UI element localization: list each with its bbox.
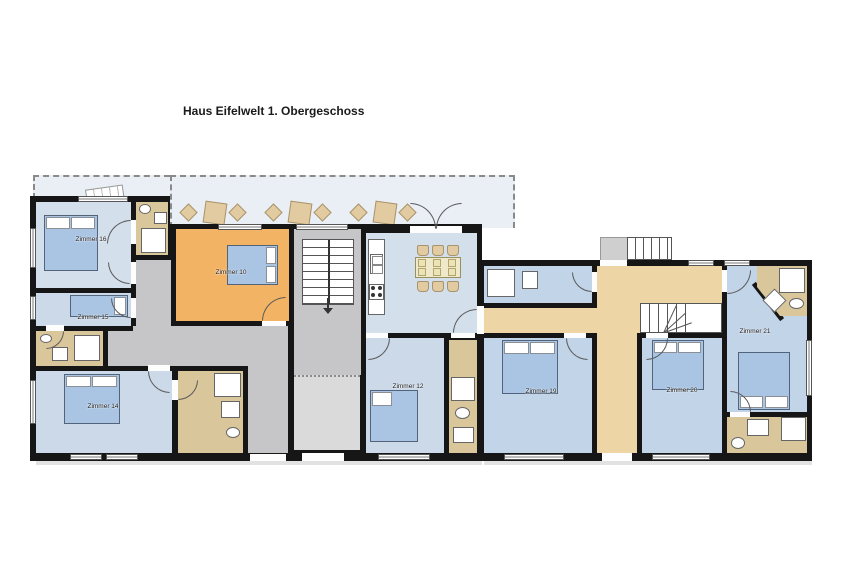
shower-icon: [74, 335, 100, 361]
pillow: [66, 376, 91, 387]
shower-icon: [451, 377, 475, 401]
pillow: [530, 342, 555, 354]
pillow: [46, 217, 70, 229]
door-opening: [131, 298, 136, 318]
building-shadow: [36, 461, 302, 465]
window: [806, 340, 812, 396]
entry-vestibule: [294, 375, 360, 450]
door-opening: [730, 412, 750, 417]
room-label-zimmer-19: Zimmer 19: [514, 388, 568, 396]
sink-basin: [372, 265, 383, 274]
room-label-zimmer-14: Zimmer 14: [76, 403, 130, 411]
pillow: [678, 342, 701, 353]
chair-icon: [447, 245, 459, 256]
room-label-zimmer-16: Zimmer 16: [64, 236, 118, 244]
toilet-icon: [731, 437, 745, 449]
hallway-right-corridor: [597, 333, 637, 453]
place-setting: [448, 268, 456, 276]
hallway-right-west: [484, 308, 597, 333]
place-setting: [433, 259, 441, 267]
door-opening: [250, 454, 286, 461]
pillow: [765, 396, 788, 408]
room-label-zimmer-10: Zimmer 10: [204, 269, 258, 277]
window: [504, 454, 564, 460]
burner-icon: [371, 293, 375, 297]
door-opening: [131, 220, 136, 244]
main-staircase-icon: [302, 239, 354, 305]
burner-icon: [371, 286, 375, 290]
window: [724, 260, 750, 266]
corridor-lower: [248, 366, 288, 453]
window: [70, 454, 102, 460]
toilet-icon: [455, 407, 470, 419]
floor-plan: Haus Eifelwelt 1. Obergeschoss: [0, 0, 842, 562]
stair-stringer: [328, 240, 330, 304]
sink-basin: [372, 256, 383, 265]
stair-arrow-icon: [327, 298, 329, 308]
hallway-left: [136, 260, 171, 326]
sink-icon: [747, 419, 769, 436]
window: [652, 454, 710, 460]
room-label-zimmer-15: Zimmer 15: [66, 314, 120, 322]
sink-icon: [522, 271, 538, 289]
toilet-icon: [789, 298, 804, 309]
chair-icon: [417, 245, 429, 256]
sink-icon: [453, 427, 474, 443]
page-title: Haus Eifelwelt 1. Obergeschoss: [183, 104, 364, 118]
window: [688, 260, 714, 266]
chair-icon: [417, 281, 429, 292]
place-setting: [418, 268, 426, 276]
burner-icon: [378, 293, 382, 297]
place-setting: [433, 268, 441, 276]
room-label-zimmer-20: Zimmer 20: [655, 387, 709, 395]
door-opening: [131, 262, 136, 284]
place-setting: [448, 259, 456, 267]
sink-icon: [154, 212, 167, 224]
chair-icon: [447, 281, 459, 292]
toilet-icon: [226, 427, 240, 438]
room-label-zimmer-12: Zimmer 12: [381, 383, 435, 391]
door-opening: [602, 453, 632, 461]
window: [218, 224, 262, 230]
room-label-zimmer-21: Zimmer 21: [728, 328, 782, 336]
kitchen-counter: [368, 239, 385, 315]
hallway-center: [133, 326, 288, 366]
shower-icon: [141, 228, 166, 253]
chair-icon: [432, 245, 444, 256]
door-opening: [451, 333, 475, 338]
shower-icon: [487, 269, 515, 297]
window: [106, 454, 138, 460]
toilet-icon: [139, 204, 151, 214]
chair-icon: [432, 281, 444, 292]
shower-icon: [779, 268, 805, 293]
pillow: [92, 376, 117, 387]
balcony-table: [373, 201, 398, 226]
building-shadow: [294, 461, 482, 465]
door-opening: [592, 272, 597, 292]
hallway-left-niche: [108, 331, 136, 366]
sink-icon: [221, 401, 240, 418]
door-opening: [262, 321, 286, 326]
balcony-table: [203, 201, 228, 226]
window: [78, 196, 128, 202]
window: [30, 296, 36, 320]
entry-door-opening: [302, 453, 344, 461]
window: [378, 454, 430, 460]
pillow: [372, 392, 392, 406]
shower-icon: [781, 417, 806, 441]
place-setting: [418, 259, 426, 267]
sink-icon: [52, 347, 68, 361]
burner-icon: [378, 286, 382, 290]
pillow: [266, 266, 276, 283]
window: [296, 224, 348, 230]
winder-staircase-icon: [640, 303, 722, 333]
door-opening: [477, 306, 484, 334]
window: [30, 380, 36, 424]
external-staircase-icon: [627, 237, 672, 260]
pillow: [71, 217, 95, 229]
stair-arrow-icon: [323, 308, 333, 314]
shower-icon: [214, 373, 241, 397]
building-shadow: [484, 461, 812, 465]
window: [30, 228, 36, 268]
pillow: [266, 247, 276, 264]
pillow: [504, 342, 529, 354]
balcony-table: [288, 201, 313, 226]
door-opening: [600, 260, 627, 266]
